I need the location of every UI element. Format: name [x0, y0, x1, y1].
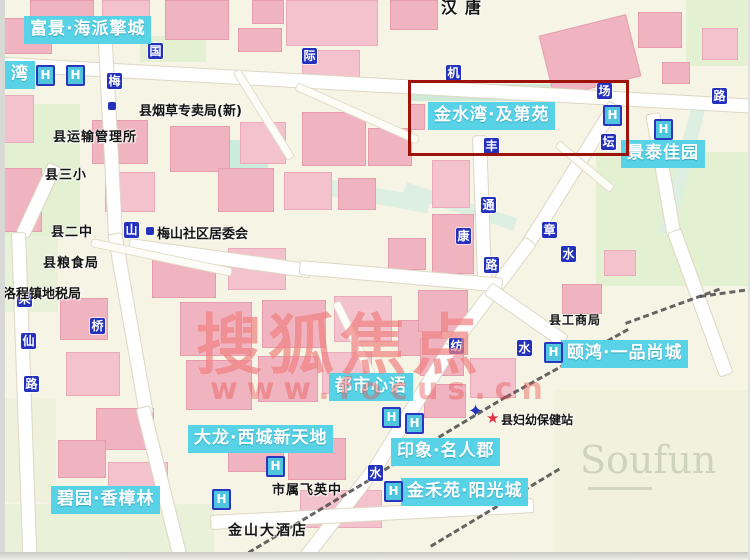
road-name-marker: 桥 — [90, 318, 105, 334]
building-block — [58, 440, 106, 478]
road-name-marker: 仙 — [21, 333, 36, 349]
building-block — [662, 62, 690, 84]
estate-label[interactable]: 印象·名人郡 — [391, 438, 500, 466]
road-name-marker: 水 — [517, 340, 532, 356]
building-block — [302, 112, 366, 166]
building-block — [66, 352, 120, 396]
hotel-icon: H — [212, 489, 231, 510]
building-block — [562, 284, 602, 314]
map-canvas[interactable]: 国际机场路梅山采仙路桥丰通康路章水坛纺水水HHHHHHHHHH★✦ 富景·海派擎… — [0, 0, 750, 560]
hotel-icon: H — [405, 413, 424, 434]
road-name-marker: 国 — [148, 43, 163, 59]
road-name-marker: 路 — [484, 257, 499, 273]
road-name-marker: 路 — [712, 88, 727, 104]
estate-label[interactable]: 金禾苑·阳光城 — [401, 478, 528, 506]
poi-label: 县三小 — [45, 164, 87, 183]
road-name-marker: 山 — [124, 222, 139, 238]
building-block — [286, 0, 378, 46]
road-name-marker: 水 — [368, 465, 383, 481]
building-block — [252, 0, 284, 24]
highlight-rectangle — [408, 80, 629, 156]
estate-label[interactable]: 大龙·西城新天地 — [188, 425, 333, 453]
poi-label: 县运输管理所 — [53, 126, 137, 145]
road-name-marker: 路 — [24, 376, 39, 392]
estate-label[interactable]: 碧园·香樟林 — [51, 486, 160, 514]
building-block — [170, 126, 230, 172]
corner-watermark-bar — [588, 487, 652, 490]
road-dot-marker — [146, 227, 154, 235]
hotel-icon: H — [36, 65, 55, 86]
road-name-marker: 通 — [481, 197, 496, 213]
road-name-marker: 机 — [446, 65, 461, 81]
poi-label: 梅山社区居委会 — [157, 223, 248, 242]
hotel-icon: H — [544, 342, 563, 363]
building-block — [388, 238, 426, 270]
hotel-icon: H — [384, 481, 403, 502]
poi-label: 市属飞英中 — [272, 479, 342, 498]
poi-label: 金山大酒店 — [228, 520, 308, 540]
poi-label: 县烟草专卖局(新) — [139, 100, 242, 119]
hotel-icon: H — [66, 65, 85, 86]
window-edge-bottom — [0, 552, 750, 560]
road-name-marker: 康 — [456, 228, 471, 244]
estate-label[interactable]: 景泰佳园 — [621, 140, 705, 168]
window-edge-left — [0, 0, 5, 560]
building-block — [338, 178, 376, 210]
estate-label[interactable]: 颐鸿·一品尚城 — [561, 340, 688, 368]
road-name-marker: 水 — [561, 246, 576, 262]
poi-label: 县粮食局 — [43, 252, 99, 271]
building-block — [284, 172, 332, 210]
building-block — [604, 250, 636, 276]
estate-label[interactable]: 湾 — [5, 61, 35, 89]
hotel-icon: H — [382, 407, 401, 428]
building-block — [0, 95, 34, 143]
road-name-marker: 梅 — [107, 73, 122, 89]
poi-label: 县妇幼保健站 — [501, 411, 573, 428]
building-block — [218, 168, 274, 212]
building-block — [702, 28, 738, 60]
building-block — [638, 12, 682, 48]
road-name-marker: 际 — [302, 48, 317, 64]
building-block — [165, 0, 229, 40]
road-name-marker: 章 — [542, 222, 557, 238]
building-block — [238, 28, 282, 52]
poi-label: 县二中 — [51, 221, 93, 240]
poi-label: 县工商局 — [549, 311, 601, 328]
estate-label[interactable]: 富景·海派擎城 — [24, 16, 151, 44]
watermark-url: www.focus.cn — [210, 372, 552, 407]
building-block — [432, 214, 474, 274]
building-block — [390, 0, 438, 30]
poi-label: 汉唐 — [441, 0, 489, 18]
road-dot-marker — [108, 102, 116, 110]
building-block — [432, 160, 470, 208]
hotel-icon: H — [654, 119, 673, 140]
star-icon: ★ — [486, 411, 499, 426]
poi-label: 洛程镇地税局 — [3, 283, 81, 302]
hotel-icon: H — [266, 456, 285, 477]
corner-watermark: Soufun — [580, 438, 716, 482]
